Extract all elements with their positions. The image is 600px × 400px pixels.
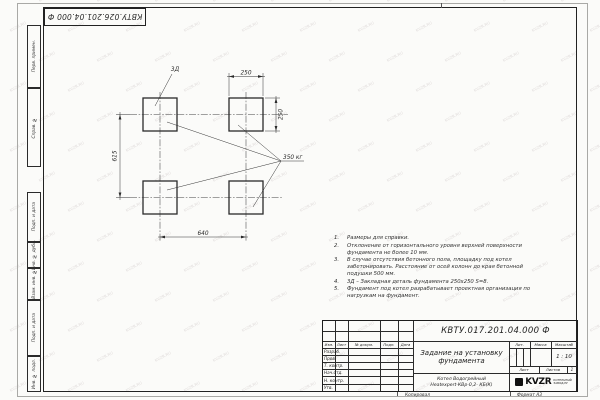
load-leader-top-left (167, 122, 281, 161)
tb-col-podp: Подп. (380, 341, 398, 348)
footer-format-label: Формат А3 (517, 393, 542, 398)
notes-list: 1.Размеры для справки. 2.Отклонение от г… (334, 235, 542, 301)
note-number: 4. (334, 279, 347, 286)
tb-col-docnum: № докум. (348, 341, 380, 348)
note-number: 1. (334, 235, 347, 242)
margin-col-perv-primen: Перв. примен. (27, 25, 41, 88)
top-designation-stamp: КВТУ.026.201.04.000 Ф (44, 8, 146, 26)
footer-tick (510, 392, 511, 396)
kvzr-logo-icon (515, 378, 523, 386)
note-item: 3.В случае отсутствия бетонного пола, пл… (334, 257, 542, 277)
dim-top-label: 250 (240, 71, 251, 77)
margin-col-podp-data-1: Подп. и дата (27, 192, 41, 242)
note-item: 4.3Д – Закладная деталь фундамента 250х2… (334, 279, 542, 286)
tb-col-izm: Изм. (323, 341, 335, 348)
note-number: 3. (334, 257, 347, 277)
tb-scale-label: Масштаб (551, 341, 577, 348)
note-number: 5. (334, 286, 347, 300)
margin-col-inv-dubl: Инв. № дубл. (27, 242, 41, 268)
tb-company-cell: KVZR КОТЕЛЬНЫЙ ЗАВОД.РУ (510, 373, 577, 391)
kvzr-tagline-line2: ЗАВОД.РУ (553, 382, 571, 385)
dim-left-label: 615 (113, 150, 119, 161)
tb-col-data: Дата (398, 341, 413, 348)
margin-col-podp-data-2: Подп. и дата (27, 300, 41, 356)
margin-col-vzam-inv: Взам. инв. № (27, 268, 41, 300)
load-leader-bottom-left (167, 161, 281, 190)
margin-col-inv-podl: Инв. № подл. (27, 356, 41, 392)
note-text: 3Д – Закладная деталь фундамента 250х250… (347, 279, 542, 286)
watermark-text: KVZR.RU (589, 140, 600, 153)
note-item: 5.Фундамент под котел разрабатывает прое… (334, 286, 542, 300)
tb-col-list: Лист (335, 341, 348, 348)
kvzr-tagline: КОТЕЛЬНЫЙ ЗАВОД.РУ (553, 379, 571, 386)
dim-bottom-label: 640 (197, 231, 208, 237)
tb-row-razrab: Разраб. (324, 349, 340, 354)
load-leader-bottom-right (253, 161, 281, 207)
watermark-text: KVZR.RU (589, 200, 600, 213)
note-item: 2.Отклонение от горизонтального уровня в… (334, 243, 542, 257)
tb-designation: КВТУ.017.201.04.000 Ф (414, 321, 577, 341)
note-item: 1.Размеры для справки. (334, 235, 542, 242)
tb-sheets-value: 1 (567, 366, 577, 373)
note-text: В случае отсутствия бетонного пола, площ… (347, 257, 542, 277)
tb-row-utv: Утв. (324, 385, 333, 390)
note-text: Фундамент под котел разрабатывает проект… (347, 286, 542, 300)
watermark-text: KVZR.RU (589, 260, 600, 273)
drawing-sheet: KVZR.RUKVZR.RUKVZR.RUKVZR.RUKVZR.RUKVZR.… (0, 0, 600, 400)
tb-doc-title: Задание на установку фундамента (416, 342, 507, 372)
tb-lit-label: Лит. (509, 341, 530, 348)
watermark-text: KVZR.RU (589, 320, 600, 333)
note-text: Отклонение от горизонтального уровня вер… (347, 243, 542, 257)
foundation-plan: 250 250 615 640 3Д 350 кг (100, 55, 310, 250)
tb-sheets-label: Листов (539, 366, 567, 373)
callout-label: 3Д (171, 67, 180, 73)
note-number: 2. (334, 243, 347, 257)
title-block: Изм. Лист № докум. Подп. Дата Разраб. Пр… (322, 320, 578, 392)
tb-row-nachotd: Нач.отд. (324, 370, 343, 375)
kvzr-logo-text: KVZR (525, 377, 551, 387)
top-designation-text: КВТУ.026.201.04.000 Ф (48, 13, 143, 22)
dim-right-label: 250 (279, 109, 285, 120)
callout-leader-line (155, 74, 172, 106)
margin-col-label: Подп. и дата (32, 202, 37, 231)
margin-col-label: Взам. инв. № (32, 269, 37, 299)
centering-mark (441, 3, 442, 8)
watermark-text: KVZR.RU (589, 80, 600, 93)
tb-scale-value: 1 : 10 (551, 348, 577, 366)
margin-col-label: Справ. № (32, 117, 37, 138)
load-label: 350 кг (283, 155, 303, 161)
tb-row-nkontr: Н. контр. (324, 378, 344, 383)
margin-col-sprav: Справ. № (27, 88, 41, 167)
tb-mass-label: Масса (530, 341, 551, 348)
watermark-text: KVZR.RU (589, 380, 600, 393)
margin-col-label: Инв. № подл. (32, 359, 37, 389)
watermark-text: KVZR.RU (589, 20, 600, 33)
footer-tick (397, 392, 398, 396)
margin-col-label: Перв. примен. (32, 40, 37, 72)
tb-sheet-label: Лист (509, 366, 539, 373)
tb-product: Котел Водогрейный Heatexpert-КВр-0,2- КБ… (414, 374, 509, 391)
note-text: Размеры для справки. (347, 235, 542, 242)
margin-col-label: Инв. № дубл. (32, 240, 37, 270)
margin-col-label: Подп. и дата (32, 313, 37, 342)
tb-row-prov: Пров. (324, 356, 336, 361)
tb-product-line2: Heatexpert-КВр-0,2- КБ(К) (430, 383, 492, 389)
footer-copy-label: Копировал (405, 393, 430, 398)
tb-row-tkontr: Т. контр. (324, 363, 343, 368)
